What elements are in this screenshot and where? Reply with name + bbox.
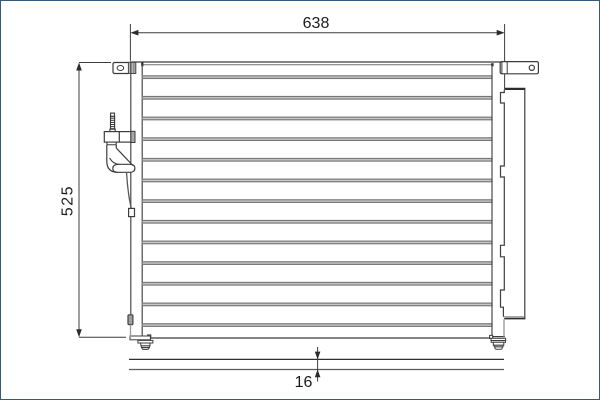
- svg-text:638: 638: [303, 15, 330, 32]
- svg-text:525: 525: [60, 185, 77, 216]
- svg-text:16: 16: [295, 374, 313, 391]
